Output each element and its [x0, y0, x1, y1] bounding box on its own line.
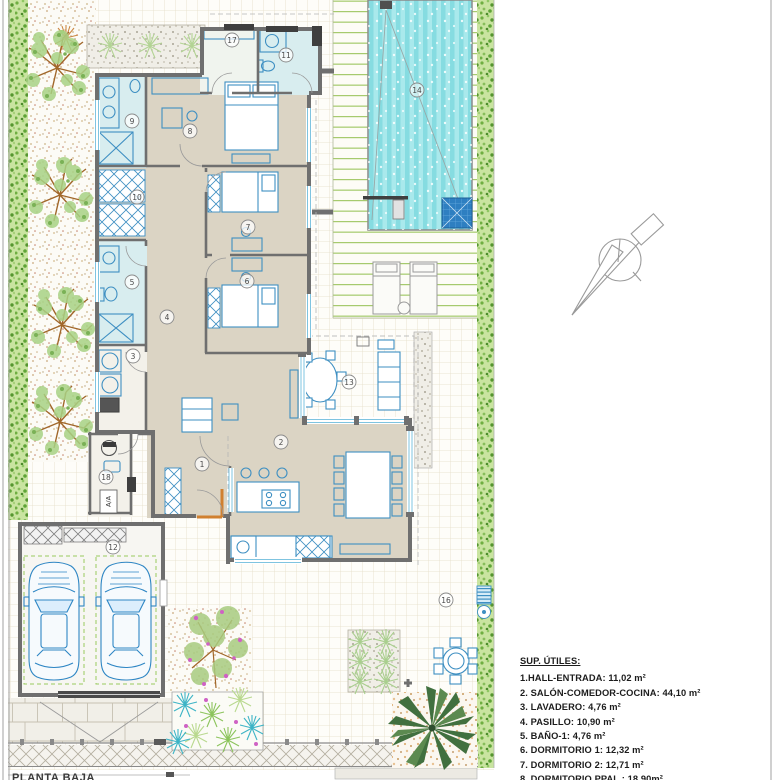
garage	[20, 522, 167, 698]
room-label-11: 11	[279, 48, 293, 62]
legend-item: 1.HALL-ENTRADA: 11,02 m²	[520, 671, 772, 685]
ac-label: A/A	[105, 495, 113, 507]
svg-text:2: 2	[279, 438, 284, 447]
car-right	[96, 562, 156, 680]
sheet-title: PLANTA BAJA	[12, 772, 95, 780]
svg-text:13: 13	[344, 378, 354, 387]
svg-text:6: 6	[245, 277, 250, 286]
room-label-1: 1	[195, 457, 209, 471]
flower-bed	[166, 687, 264, 754]
svg-text:12: 12	[108, 543, 118, 552]
outdoor-dining-table	[303, 358, 337, 402]
room-label-18: 18	[99, 470, 113, 484]
room-label-3: 3	[126, 349, 140, 363]
stone-strip	[414, 332, 432, 468]
hedge-left	[8, 0, 28, 520]
deck-side-table	[398, 302, 410, 314]
legend-item: 2. SALÓN-COMEDOR-COCINA: 44,10 m²	[520, 686, 772, 700]
svg-text:10: 10	[132, 193, 142, 202]
legend-item: 3. LAVADERO: 4,76 m²	[520, 700, 772, 714]
legend-title: SUP. ÚTILES:	[520, 654, 772, 668]
room-label-14: 14	[410, 83, 424, 97]
legend-item: 6. DORMITORIO 1: 12,32 m²	[520, 743, 772, 757]
utility-items: A/A	[100, 490, 117, 513]
top-gravel-bed	[87, 25, 205, 68]
room-label-17: 17	[225, 33, 239, 47]
room-label-7: 7	[241, 220, 255, 234]
room-label-10: 10	[130, 190, 144, 204]
palm-area	[388, 686, 477, 770]
svg-text:18: 18	[101, 473, 111, 482]
svg-text:14: 14	[412, 86, 422, 95]
svg-text:1: 1	[200, 460, 205, 469]
svg-text:5: 5	[130, 278, 135, 287]
floor-plan-sheet: A/A 1 2 3 4 5 6 7 8 9 10 11 12 13 14 16 …	[0, 0, 780, 780]
room-label-8: 8	[183, 124, 197, 138]
legend-item: 5. BAÑO-1: 4,76 m²	[520, 729, 772, 743]
room-label-2: 2	[274, 435, 288, 449]
room-label-6: 6	[240, 274, 254, 288]
svg-text:4: 4	[165, 313, 170, 322]
legend-item: 7. DORMITORIO 2: 12,71 m²	[520, 758, 772, 772]
pool-skimmer	[380, 1, 392, 9]
room-label-13: 13	[342, 375, 356, 389]
svg-text:11: 11	[281, 51, 291, 60]
car-left	[24, 562, 84, 680]
hedge-right	[477, 0, 494, 768]
svg-text:8: 8	[188, 127, 193, 136]
svg-text:16: 16	[441, 596, 451, 605]
room-label-16: 16	[439, 593, 453, 607]
legend-item: 4. PASILLO: 10,90 m²	[520, 715, 772, 729]
swimming-pool	[363, 0, 472, 230]
outdoor-shower	[477, 586, 491, 619]
legend: SUP. ÚTILES: 1.HALL-ENTRADA: 11,02 m² 2.…	[520, 654, 772, 780]
svg-text:9: 9	[130, 117, 135, 126]
room-label-5: 5	[125, 275, 139, 289]
room-label-4: 4	[160, 310, 174, 324]
room-label-9: 9	[125, 114, 139, 128]
svg-text:7: 7	[246, 223, 251, 232]
north-arrow-icon	[572, 214, 664, 315]
room-label-12: 12	[106, 540, 120, 554]
legend-item: 8. DORMITORIO PPAL.: 18,90m²	[520, 772, 772, 780]
bath1-floor	[95, 240, 147, 345]
svg-text:17: 17	[227, 36, 237, 45]
outdoor-sofa	[378, 352, 400, 410]
garage-side-door	[160, 580, 167, 606]
svg-text:3: 3	[131, 352, 136, 361]
